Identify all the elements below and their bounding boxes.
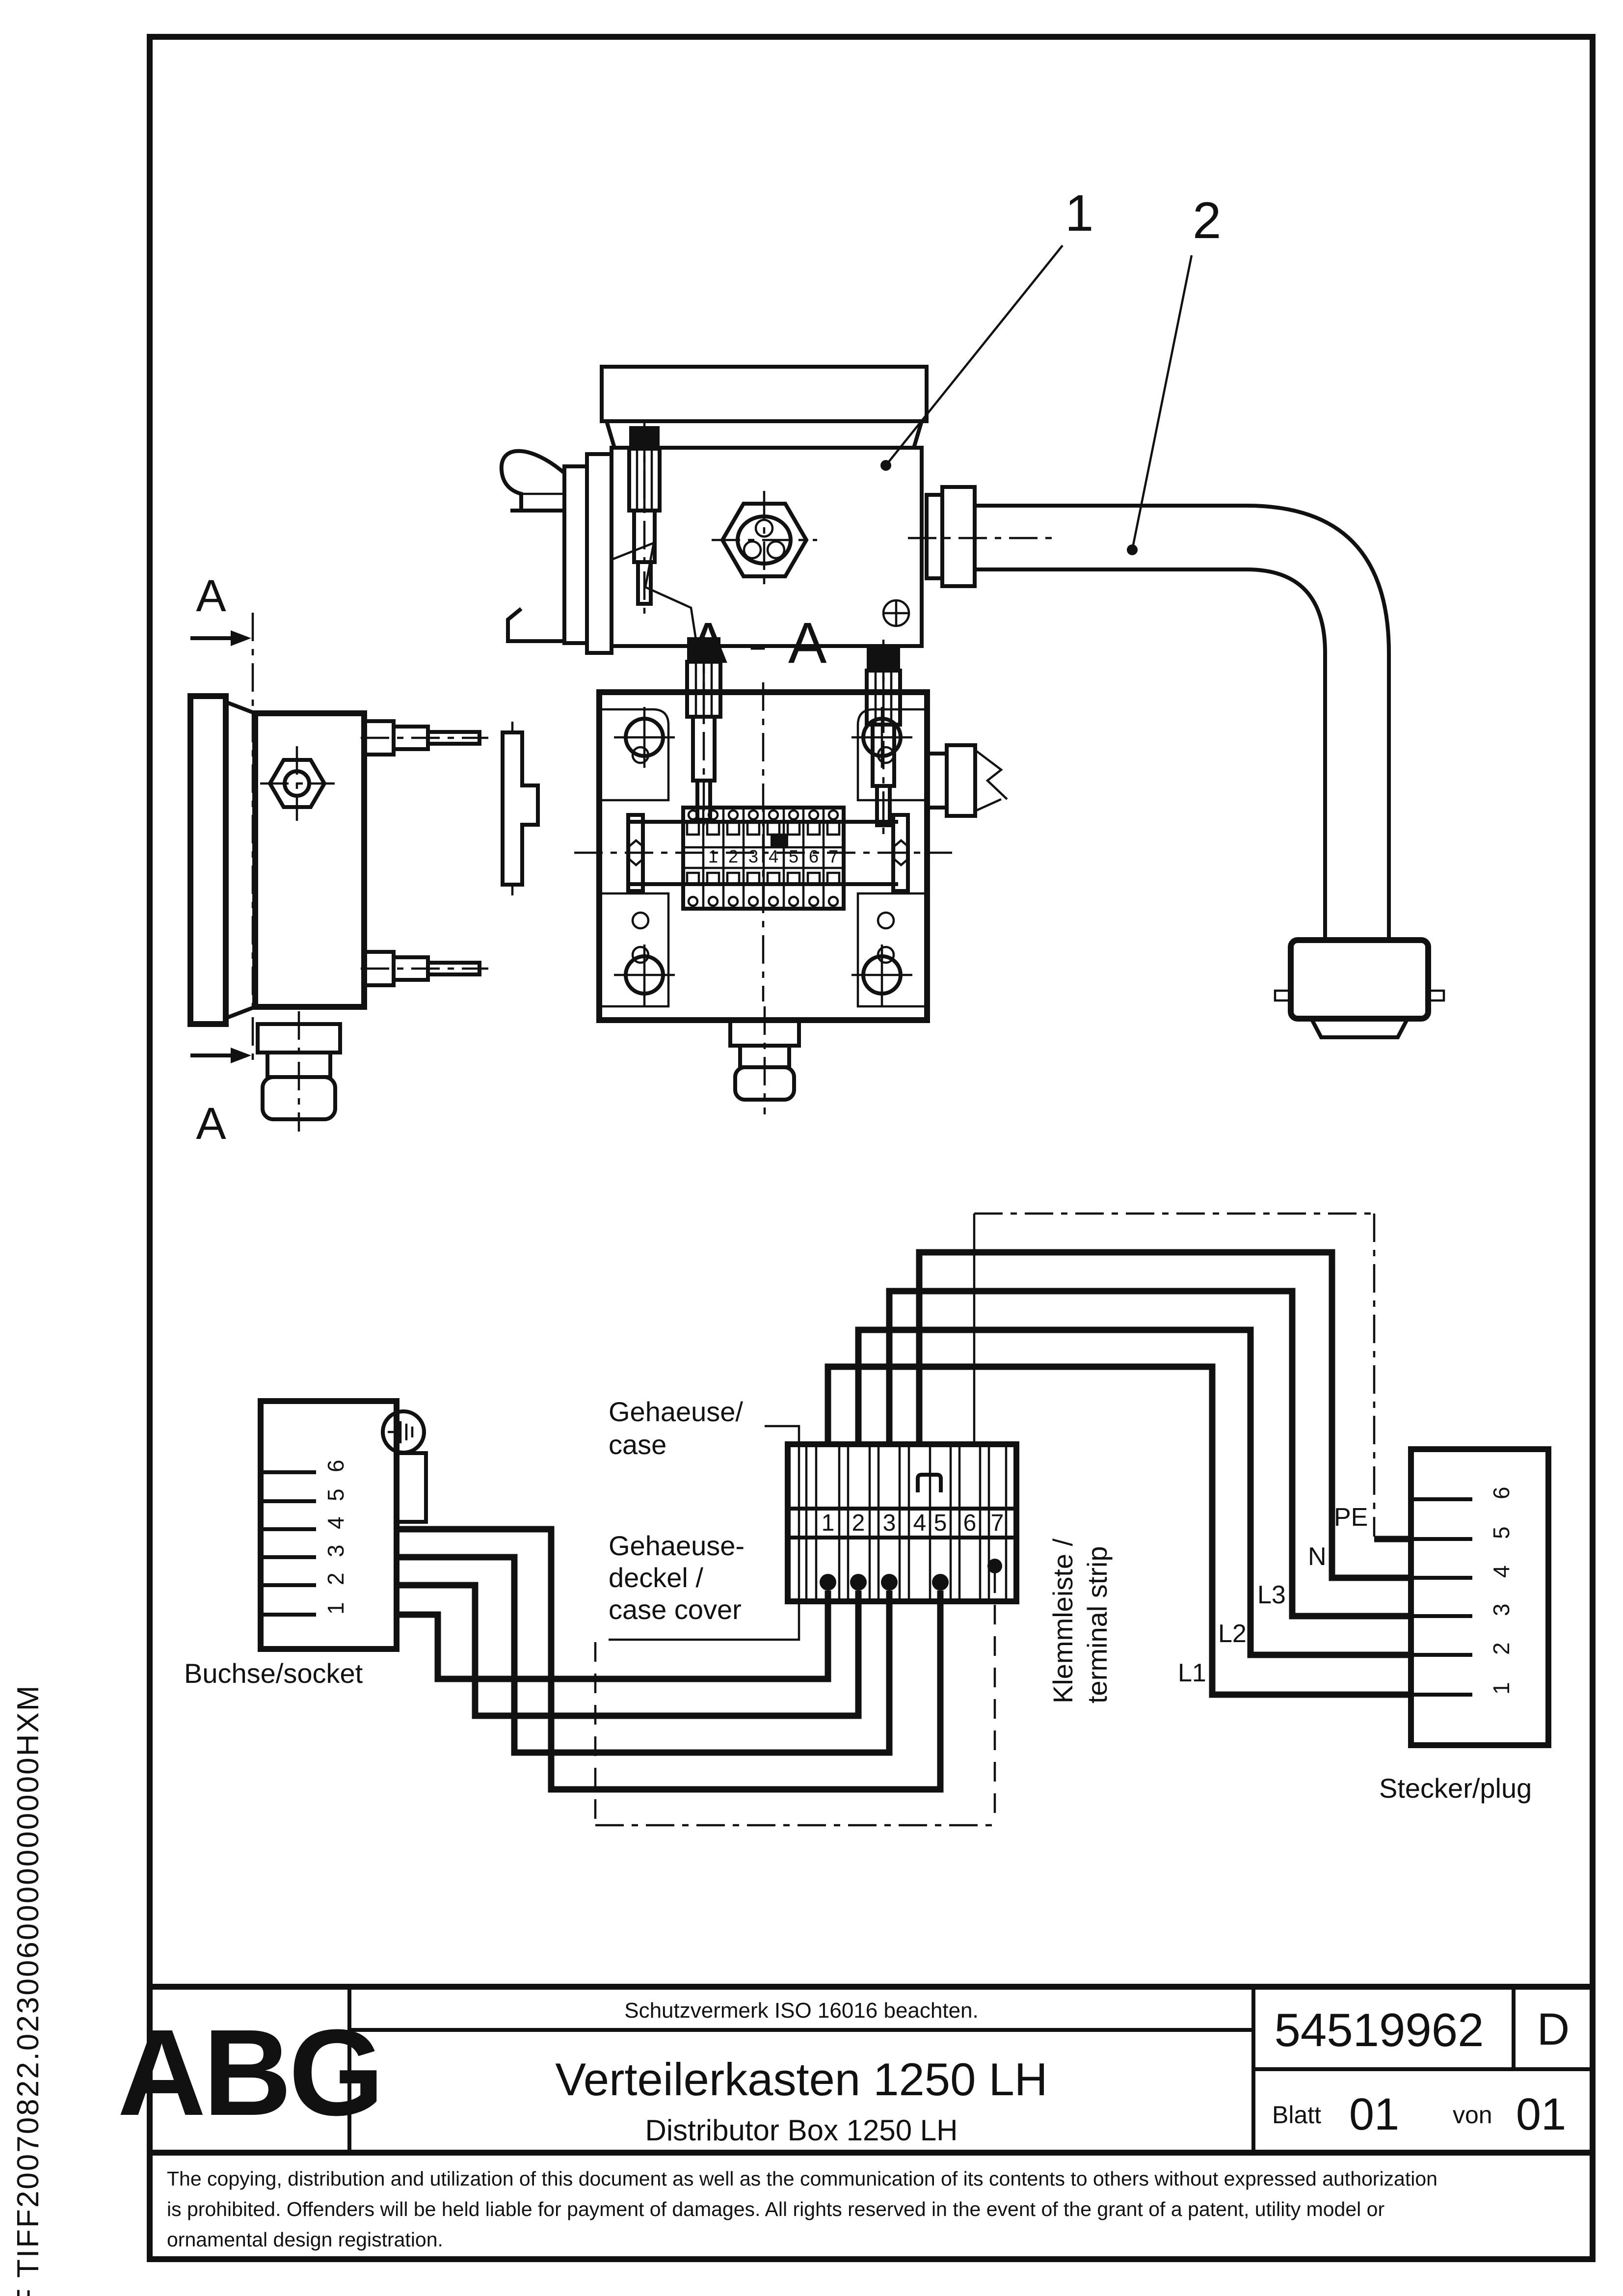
section-arrowhead-top bbox=[231, 630, 251, 646]
of-label: von bbox=[1453, 2101, 1492, 2129]
scan-id-side-text: F TIFF20070822.0230060000000000HXM bbox=[11, 1684, 45, 2296]
terminal-strip-label-en: terminal strip bbox=[1082, 1546, 1113, 1703]
wire-label-pe: PE bbox=[1334, 1503, 1368, 1532]
plug-label: Stecker/plug bbox=[1379, 1773, 1532, 1804]
socket-pin: 5 bbox=[323, 1488, 348, 1501]
copyright-line-2: is prohibited. Offenders will be held li… bbox=[167, 2198, 1384, 2220]
terminal-num: 5 bbox=[934, 1510, 947, 1536]
document-number: 54519962 bbox=[1274, 2004, 1484, 2056]
gland-hole-3 bbox=[768, 541, 784, 558]
hex-nut-centerlines bbox=[260, 746, 335, 821]
plug-pin: 2 bbox=[1489, 1642, 1514, 1655]
plug-wires bbox=[828, 1252, 1411, 1695]
plug-pin: 5 bbox=[1489, 1526, 1514, 1539]
socket-pin-numbers: 1 2 3 4 5 6 bbox=[323, 1459, 348, 1615]
socket-label: Buchse/socket bbox=[184, 1658, 363, 1689]
title-block: ABG Schutzvermerk ISO 16016 beachten. Ve… bbox=[117, 1987, 1593, 2153]
sheet-number: 01 bbox=[1349, 2089, 1399, 2139]
socket-pin: 1 bbox=[323, 1602, 348, 1615]
wire-label-l2: L2 bbox=[1218, 1620, 1247, 1648]
wire-label-n: N bbox=[1308, 1542, 1327, 1571]
side-view: A A bbox=[190, 571, 538, 1149]
protection-notice: Schutzvermerk ISO 16016 beachten. bbox=[624, 1999, 979, 2023]
terminal-num: 7 bbox=[991, 1510, 1004, 1536]
plug-pin-numbers: 1 2 3 4 5 6 bbox=[1489, 1486, 1514, 1695]
wire-label-l1: L1 bbox=[1178, 1659, 1206, 1687]
copyright-line-3: ornamental design registration. bbox=[167, 2228, 443, 2251]
cover-label-2: deckel / bbox=[609, 1562, 703, 1593]
cable-plug-body bbox=[1291, 940, 1428, 1019]
lid-profile bbox=[226, 702, 255, 1018]
sheet-label: Blatt bbox=[1272, 2101, 1321, 2129]
clamp-hook bbox=[502, 451, 563, 511]
socket: 1 2 3 4 5 6 Buchse/socket bbox=[184, 1401, 426, 1689]
section-marker-bottom: A bbox=[196, 1099, 226, 1149]
drawing-sheet: 1 2 bbox=[0, 0, 1623, 2296]
cover-label-1: Gehaeuse- bbox=[609, 1530, 745, 1561]
clamp-plate bbox=[564, 466, 587, 643]
callout-2-dot bbox=[1127, 544, 1138, 555]
term-num: 2 bbox=[728, 846, 738, 866]
callout-1-leader bbox=[886, 245, 1063, 465]
revision: D bbox=[1537, 2004, 1570, 2054]
terminal-strip-label-de: Klemmleiste / bbox=[1047, 1538, 1078, 1703]
side-bolt-top bbox=[361, 721, 488, 755]
gland-hole-2 bbox=[744, 541, 761, 558]
case-boundary-top bbox=[974, 1214, 1374, 1537]
copyright-note: The copying, distribution and utilizatio… bbox=[167, 2167, 1437, 2251]
sheet-total: 01 bbox=[1516, 2089, 1566, 2139]
cable-gland-collar bbox=[927, 495, 942, 578]
flange bbox=[190, 696, 226, 1024]
section-title: A - A bbox=[689, 611, 830, 675]
term-num: 1 bbox=[708, 846, 718, 866]
terminal-num: 3 bbox=[883, 1510, 896, 1536]
case-labels: Gehaeuse/ case Gehaeuse- deckel / case c… bbox=[609, 1396, 799, 1640]
section-view-a-a: A - A bbox=[574, 611, 1007, 1114]
flange-plate bbox=[587, 454, 612, 653]
drawing-title-en: Distributor Box 1250 LH bbox=[645, 2114, 958, 2147]
callout-2: 2 bbox=[1193, 192, 1221, 249]
top-view-distributor-box: 1 2 bbox=[502, 185, 1444, 1037]
company-logo: ABG bbox=[117, 2004, 381, 2141]
cover-label-3: case cover bbox=[609, 1594, 742, 1625]
plug-pin: 3 bbox=[1489, 1603, 1514, 1616]
terminal-num: 1 bbox=[822, 1510, 835, 1536]
terminal-num: 6 bbox=[963, 1510, 977, 1536]
plug-pin: 4 bbox=[1489, 1565, 1514, 1578]
wire-label-l3: L3 bbox=[1257, 1581, 1286, 1609]
box-lid bbox=[602, 367, 927, 421]
plug: 1 2 3 4 5 6 Stecker/plug bbox=[1379, 1449, 1548, 1804]
term-num: 5 bbox=[789, 846, 798, 866]
section-marker-top: A bbox=[196, 571, 226, 621]
plug-pin: 1 bbox=[1489, 1682, 1514, 1695]
socket-tab bbox=[397, 1453, 426, 1522]
socket-pin-stubs bbox=[263, 1472, 316, 1615]
side-bolt-bottom bbox=[361, 952, 488, 985]
socket-pin: 4 bbox=[323, 1516, 348, 1529]
term-num: 3 bbox=[748, 846, 758, 866]
case-label-en: case bbox=[609, 1429, 666, 1460]
section-right-gland bbox=[927, 745, 1007, 816]
socket-pin: 2 bbox=[323, 1572, 348, 1585]
cable-inner bbox=[975, 569, 1325, 940]
drawing-title-de: Verteilerkasten 1250 LH bbox=[555, 2053, 1047, 2105]
term-num: 7 bbox=[828, 846, 838, 866]
earth-ground-glyph bbox=[388, 1421, 412, 1443]
section-arrowhead-bottom bbox=[231, 1048, 251, 1063]
socket-pin: 6 bbox=[323, 1459, 348, 1472]
socket-pin: 3 bbox=[323, 1544, 348, 1557]
body-profile bbox=[255, 713, 364, 1007]
term-num: 6 bbox=[809, 846, 819, 866]
wiring-schematic: 1 2 3 4 5 6 Buchse/socket Gehaeuse/ case… bbox=[184, 1214, 1548, 1825]
callout-1: 1 bbox=[1065, 185, 1093, 242]
terminal-num: 2 bbox=[852, 1510, 865, 1536]
drawing-frame bbox=[150, 37, 1593, 2259]
case-label-de: Gehaeuse/ bbox=[609, 1396, 743, 1427]
callout-1-dot bbox=[880, 460, 891, 471]
plug-pin: 6 bbox=[1489, 1486, 1514, 1499]
copyright-line-1: The copying, distribution and utilizatio… bbox=[167, 2167, 1437, 2190]
term-num: 4 bbox=[769, 846, 778, 866]
cable-gland-nut bbox=[942, 487, 975, 586]
clamp-foot bbox=[508, 609, 563, 641]
terminal-strip: 1 2 3 4 5 6 7 Klemmleiste / terminal str… bbox=[788, 1444, 1113, 1703]
terminal-num: 4 bbox=[913, 1510, 927, 1536]
terminal-block-numbers: 1 2 3 4 5 6 7 bbox=[708, 846, 838, 866]
plug-pin-stubs bbox=[1411, 1499, 1472, 1695]
din-clip bbox=[503, 732, 538, 885]
